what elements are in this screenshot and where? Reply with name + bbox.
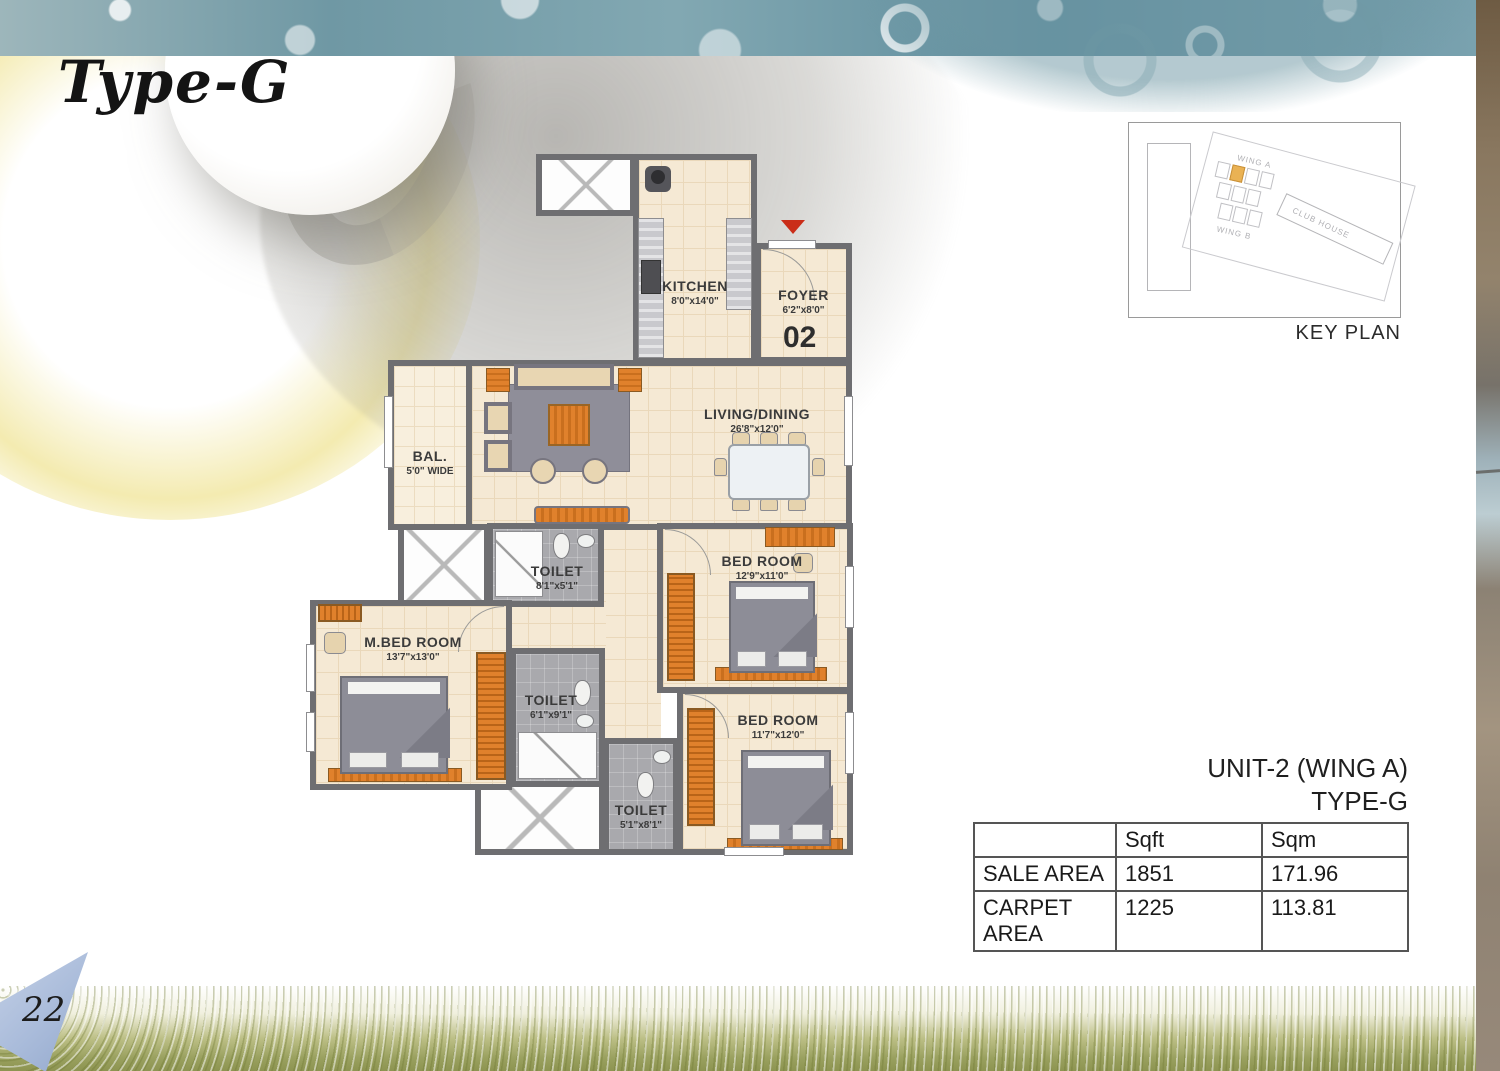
room-bedroom-2: BED ROOM 11'7"x12'0" xyxy=(677,688,853,855)
bed xyxy=(741,750,831,846)
room-dims: 26'8"x12'0" xyxy=(672,424,842,437)
floor-plan: KITCHEN 8'0"x14'0" FOYER 6'2"x8'0" 02 BA… xyxy=(300,146,856,858)
table-row-sale-area: SALE AREA 1851 171.96 xyxy=(974,857,1408,891)
table-header-empty xyxy=(974,823,1116,857)
room-living-dining: LIVING/DINING 26'8"x12'0" xyxy=(466,360,852,530)
table-header-row: Sqft Sqm xyxy=(974,823,1408,857)
right-photo-strip xyxy=(1476,0,1500,1071)
room-dims: 13'7"x13'0" xyxy=(330,652,496,665)
utility-shaft-left xyxy=(398,523,490,607)
room-label: LIVING/DINING xyxy=(672,406,842,424)
unit-info-line2: TYPE-G xyxy=(1000,785,1408,818)
pouf xyxy=(530,458,556,484)
bed xyxy=(729,581,815,673)
sale-area-label: SALE AREA xyxy=(974,857,1116,891)
entry-arrow-icon xyxy=(781,220,805,234)
room-dims: 8'1"x5'1" xyxy=(515,581,599,594)
carpet-area-sqft: 1225 xyxy=(1116,891,1262,951)
room-balcony: BAL. 5'0" WIDE xyxy=(388,360,472,530)
carpet-area-sqm: 113.81 xyxy=(1262,891,1408,951)
window xyxy=(384,396,393,468)
window xyxy=(306,644,315,692)
key-plan-building: WING A WING B CLUB HOUSE xyxy=(1182,146,1399,325)
key-plan: WING A WING B CLUB HOUSE xyxy=(1128,122,1401,318)
key-plan-unit-cell xyxy=(1216,182,1232,201)
room-toilet-1: TOILET 8'1"x5'1" xyxy=(487,523,604,607)
carpet-area-label: CARPET AREA xyxy=(974,891,1116,951)
key-plan-unit-cell xyxy=(1232,206,1248,225)
sale-area-sqft: 1851 xyxy=(1116,857,1262,891)
room-dims: 12'9"x11'0" xyxy=(697,571,827,584)
room-bedroom-1: BED ROOM 12'9"x11'0" xyxy=(657,523,853,693)
room-dims: 5'0" WIDE xyxy=(394,466,466,479)
room-label: BAL. xyxy=(394,448,466,466)
sofa-chair xyxy=(484,440,512,472)
kitchen-sink-icon xyxy=(645,166,671,192)
room-label: TOILET xyxy=(516,692,586,710)
wardrobe xyxy=(687,708,715,826)
room-kitchen: KITCHEN 8'0"x14'0" xyxy=(633,154,757,364)
unit-number: 02 xyxy=(783,321,816,355)
window xyxy=(845,712,854,774)
room-dims: 8'0"x14'0" xyxy=(639,296,751,309)
room-dims: 6'2"x8'0" xyxy=(761,305,846,318)
entry-opening xyxy=(768,240,816,249)
table-header-sqm: Sqm xyxy=(1262,823,1408,857)
sofa-stool xyxy=(618,368,642,392)
pouf xyxy=(582,458,608,484)
corridor xyxy=(506,601,606,653)
corridor xyxy=(603,527,661,739)
sale-area-sqm: 171.96 xyxy=(1262,857,1408,891)
page-number: 22 xyxy=(22,990,65,1030)
key-plan-unit-cell xyxy=(1244,168,1260,187)
room-label: FOYER xyxy=(761,287,846,305)
coffee-table xyxy=(548,404,590,446)
room-label: BED ROOM xyxy=(697,553,827,571)
top-border-pattern xyxy=(860,0,1477,112)
brochure-page: Type-G KITCHEN 8'0"x14'0" FOYER 6'2"x8'0… xyxy=(0,0,1500,1071)
window xyxy=(724,847,784,856)
room-toilet-3: TOILET 5'1"x8'1" xyxy=(603,738,679,855)
key-plan-caption: KEY PLAN xyxy=(1128,322,1401,345)
wardrobe xyxy=(476,652,506,780)
unit-info: UNIT-2 (WING A) TYPE-G xyxy=(1000,752,1408,817)
table-header-sqft: Sqft xyxy=(1116,823,1262,857)
shower-area xyxy=(518,732,597,779)
washbasin-icon xyxy=(577,534,595,548)
room-master-bedroom: M.BED ROOM 13'7"x13'0" xyxy=(310,600,512,790)
window xyxy=(844,396,853,466)
wardrobe xyxy=(318,604,362,622)
area-table: Sqft Sqm SALE AREA 1851 171.96 CARPET AR… xyxy=(973,822,1409,952)
key-plan-unit-cell xyxy=(1215,161,1231,180)
room-label: TOILET xyxy=(605,802,677,820)
wc-icon xyxy=(637,772,654,798)
unit-info-line1: UNIT-2 (WING A) xyxy=(1000,752,1408,785)
wc-icon xyxy=(553,533,570,559)
sofa-3seater xyxy=(514,364,614,390)
study-desk xyxy=(765,527,835,547)
room-dims: 11'7"x12'0" xyxy=(713,730,843,743)
room-toilet-2: TOILET 6'1"x9'1" xyxy=(510,648,605,787)
key-plan-unit-cell xyxy=(1217,203,1233,222)
utility-shaft-bottom xyxy=(475,781,605,855)
dining-table xyxy=(728,444,810,500)
room-label: M.BED ROOM xyxy=(330,634,496,652)
bed xyxy=(340,676,448,774)
page-title: Type-G xyxy=(58,48,478,116)
table-row-carpet-area: CARPET AREA 1225 113.81 xyxy=(974,891,1408,951)
room-foyer: FOYER 6'2"x8'0" 02 xyxy=(755,243,852,363)
dining-chair xyxy=(714,458,727,476)
window xyxy=(306,712,315,752)
sofa-chair xyxy=(484,402,512,434)
room-label: TOILET xyxy=(515,563,599,581)
room-dims: 6'1"x9'1" xyxy=(516,710,586,723)
bottom-border-decoration xyxy=(0,986,1500,1071)
wardrobe xyxy=(667,573,695,681)
room-dims: 5'1"x8'1" xyxy=(605,820,677,833)
washbasin-icon xyxy=(653,750,671,764)
key-plan-highlighted-unit xyxy=(1229,164,1245,183)
tv-unit xyxy=(534,506,630,524)
sofa-stool xyxy=(486,368,510,392)
window xyxy=(845,566,854,628)
dining-chair xyxy=(812,458,825,476)
room-label: KITCHEN xyxy=(639,278,751,296)
room-label: BED ROOM xyxy=(713,712,843,730)
key-plan-unit-cell xyxy=(1231,185,1247,204)
utility-shaft-top xyxy=(536,154,636,216)
